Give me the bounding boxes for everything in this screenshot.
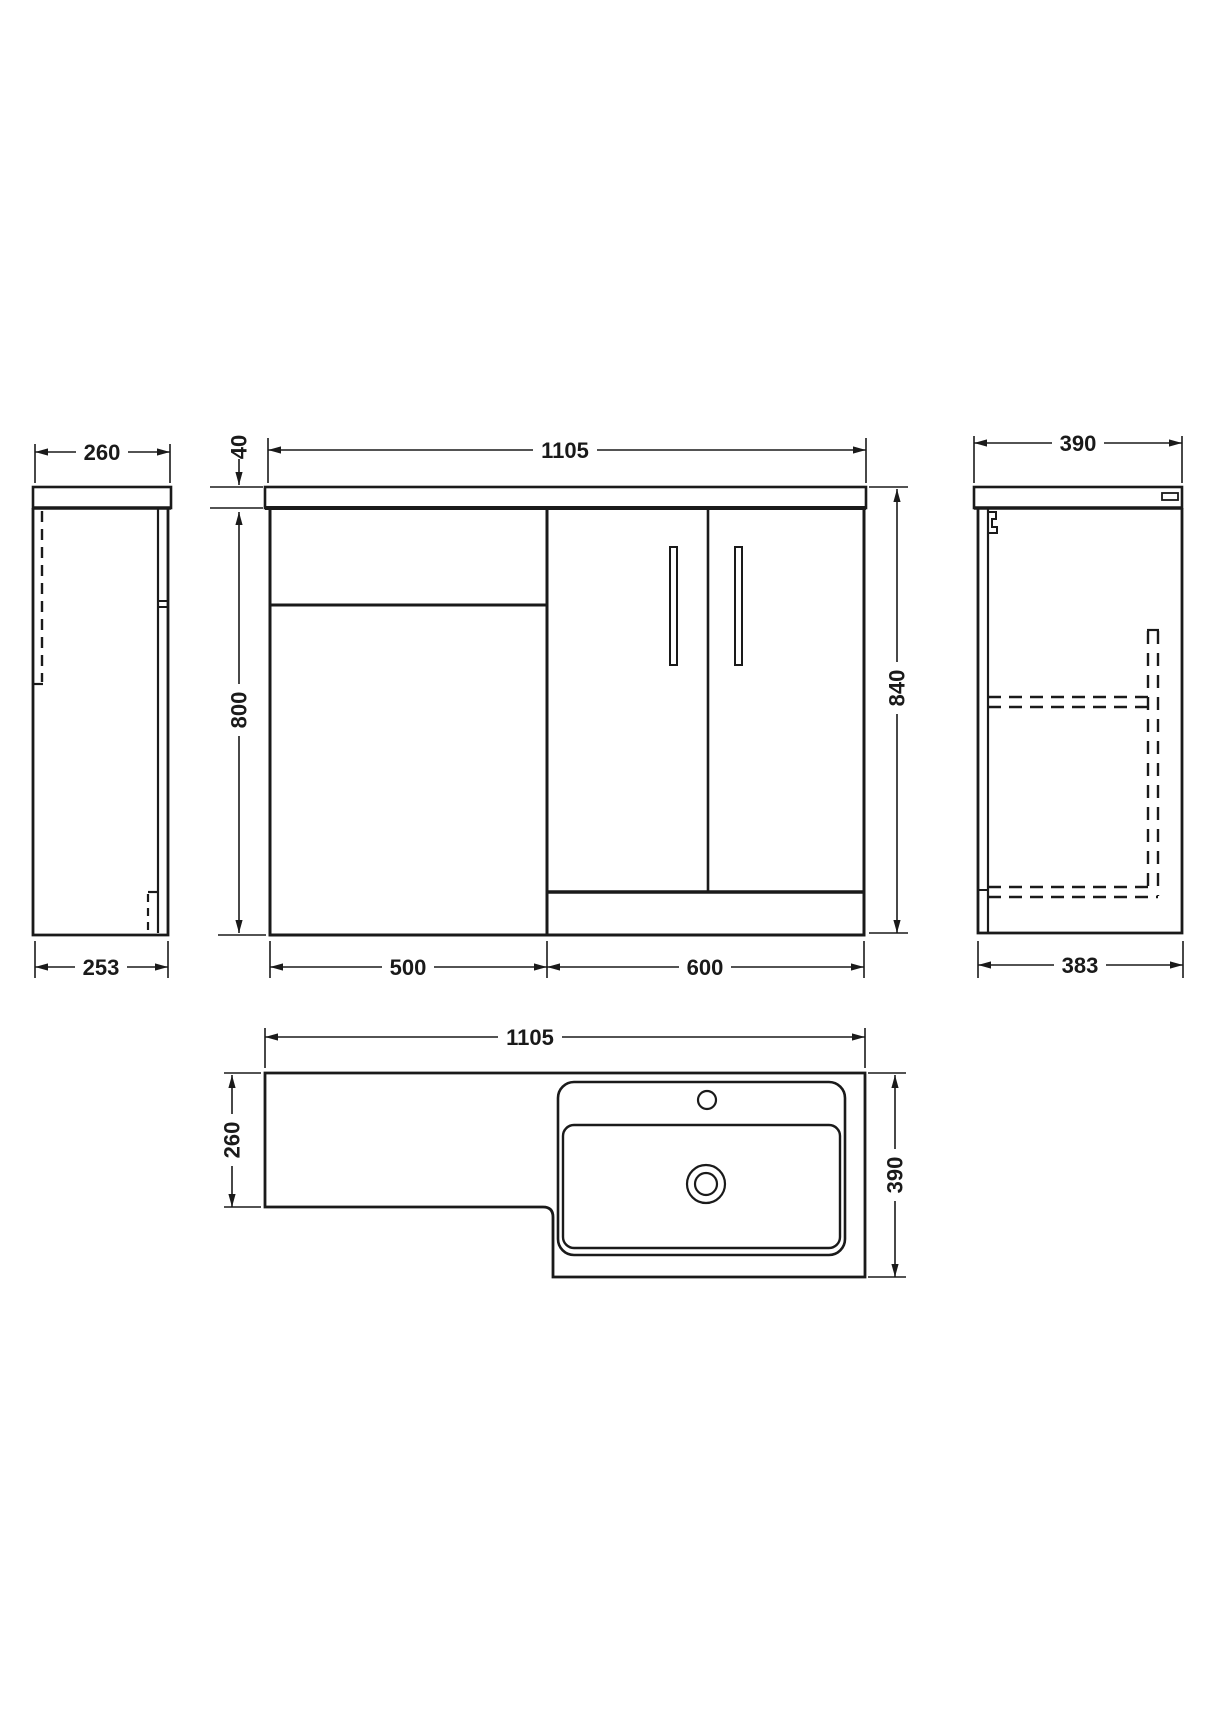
front-view-left-door-handle: [670, 547, 677, 665]
plan-waste-inner: [695, 1173, 717, 1195]
front-view-cabinet-body: [270, 508, 864, 935]
left-view-cabinet-body: [33, 508, 168, 935]
plan-waste-outer: [687, 1165, 725, 1203]
plan-view-dimensions: [224, 1028, 906, 1277]
dim-front-width-label: 1105: [541, 438, 589, 463]
dim-plan-right-depth-label: 390: [883, 1157, 908, 1194]
dim-vanity-unit-width-label: 600: [687, 955, 724, 980]
front-view-right-door-handle: [735, 547, 742, 665]
dim-right-depth-top-label: 390: [1060, 431, 1097, 456]
dim-wc-unit-width-label: 500: [390, 955, 427, 980]
dim-left-depth-top-label: 260: [84, 440, 121, 465]
dim-total-height-label: 840: [885, 670, 910, 707]
vanity-unit-dimension-drawing: 260 253: [0, 0, 1214, 1718]
front-view-worktop: [265, 487, 866, 508]
left-view-worktop: [33, 487, 171, 508]
left-side-view: [33, 487, 171, 935]
left-view-dimensions: [35, 444, 170, 978]
right-view-worktop: [974, 487, 1182, 508]
dim-cabinet-height-label: 800: [227, 692, 252, 729]
right-view-cabinet-body: [978, 508, 1182, 933]
dim-right-depth-bottom-label: 383: [1062, 953, 1099, 978]
right-view-hinge-detail: [988, 512, 997, 533]
right-view-worktop-edge-trim: [1162, 493, 1178, 500]
plan-tap-hole: [698, 1091, 716, 1109]
dim-worktop-thickness-label: 40: [227, 435, 252, 459]
dim-plan-width-label: 1105: [506, 1025, 554, 1050]
plan-basin-bowl: [563, 1125, 840, 1248]
plan-view: [265, 1073, 865, 1277]
front-view: [265, 487, 866, 935]
dim-left-depth-bottom-label: 253: [83, 955, 120, 980]
plan-worktop-outline: [265, 1073, 865, 1277]
dim-plan-left-depth-label: 260: [220, 1122, 245, 1159]
front-view-dimensions: [210, 438, 908, 978]
technical-drawing-page: 260 253: [0, 0, 1214, 1718]
right-side-view: [974, 487, 1182, 933]
